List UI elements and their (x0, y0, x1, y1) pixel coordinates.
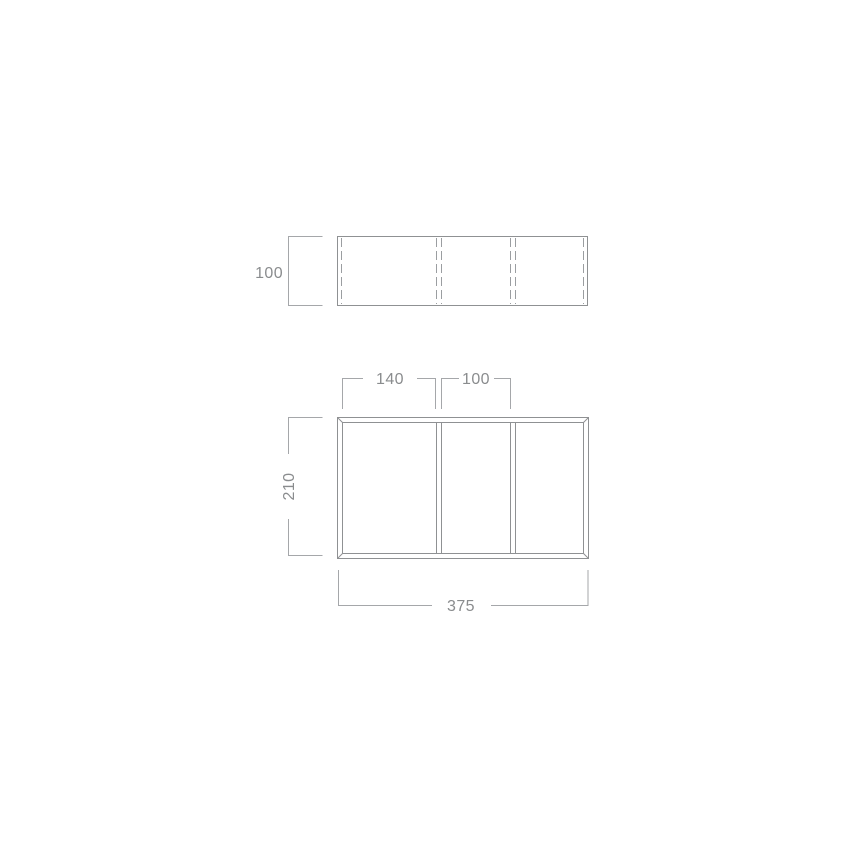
plan-depth-label: 210 (281, 473, 298, 501)
dimension-side-height-line (289, 237, 323, 306)
plan-inner-frame (343, 423, 584, 554)
plan-view-frame-group (338, 418, 589, 559)
side-view-outline-group (338, 237, 588, 306)
dimension-drawing: 100 140 100 210 375 (0, 0, 850, 850)
side-height-label: 100 (255, 265, 283, 282)
side-elevation-view (338, 237, 588, 306)
plan-view (338, 418, 589, 559)
miter-line-top-left (338, 418, 343, 423)
plan-outer-frame (338, 418, 589, 559)
dimension-labels-group: 100 140 100 210 375 (255, 265, 490, 615)
dimension-lines-group (289, 237, 589, 606)
miter-line-bottom-left (338, 554, 343, 559)
side-view-hidden-lines-group (342, 238, 584, 304)
plan-width-label: 375 (447, 598, 475, 615)
miter-line-bottom-right (584, 554, 589, 559)
compartment-1-width-label: 140 (376, 371, 404, 388)
technical-drawing-page: 100 140 100 210 375 (0, 0, 850, 850)
plan-view-miter-group (338, 418, 589, 559)
compartment-2-width-label: 100 (462, 371, 490, 388)
miter-line-top-right (584, 418, 589, 423)
side-view-outline (338, 237, 588, 306)
